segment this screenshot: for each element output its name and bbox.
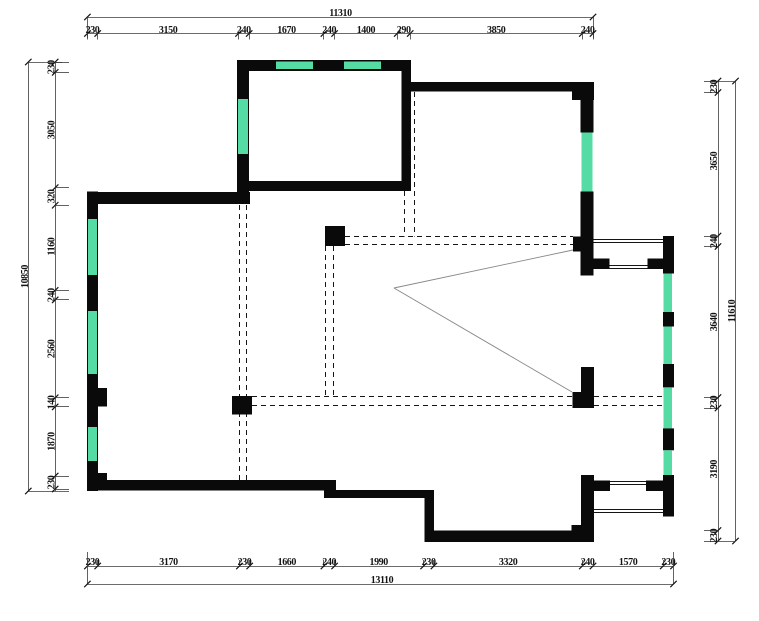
svg-text:1400: 1400 [357,25,376,36]
svg-text:3650: 3650 [709,151,720,170]
svg-text:230: 230 [709,79,720,93]
svg-text:230: 230 [709,528,720,542]
svg-text:3150: 3150 [159,25,178,36]
svg-text:3050: 3050 [47,120,58,139]
svg-text:3170: 3170 [159,557,178,568]
svg-text:240: 240 [709,234,720,248]
svg-text:320: 320 [47,189,58,203]
svg-text:230: 230 [422,557,436,568]
svg-text:290: 290 [397,25,411,36]
svg-text:3850: 3850 [487,25,506,36]
svg-text:230: 230 [709,395,720,409]
svg-text:11310: 11310 [329,8,352,19]
svg-text:240: 240 [581,25,595,36]
svg-text:1990: 1990 [369,557,388,568]
svg-text:1570: 1570 [619,557,638,568]
svg-text:10850: 10850 [20,265,31,288]
svg-text:240: 240 [581,557,595,568]
svg-text:240: 240 [322,557,336,568]
svg-text:230: 230 [47,475,58,489]
svg-text:230: 230 [238,557,252,568]
svg-text:13110: 13110 [371,575,394,586]
svg-text:240: 240 [237,25,251,36]
svg-text:3640: 3640 [709,312,720,331]
svg-text:2560: 2560 [47,339,58,358]
svg-text:230: 230 [86,25,100,36]
svg-text:140: 140 [47,395,58,409]
svg-text:3190: 3190 [709,460,720,479]
svg-text:11610: 11610 [727,299,738,322]
svg-text:3320: 3320 [499,557,518,568]
svg-text:1160: 1160 [47,237,58,255]
svg-text:1670: 1670 [277,25,296,36]
svg-text:1870: 1870 [47,432,58,451]
svg-text:230: 230 [47,60,58,74]
svg-text:240: 240 [47,288,58,302]
svg-text:1660: 1660 [278,557,297,568]
svg-text:240: 240 [322,25,336,36]
